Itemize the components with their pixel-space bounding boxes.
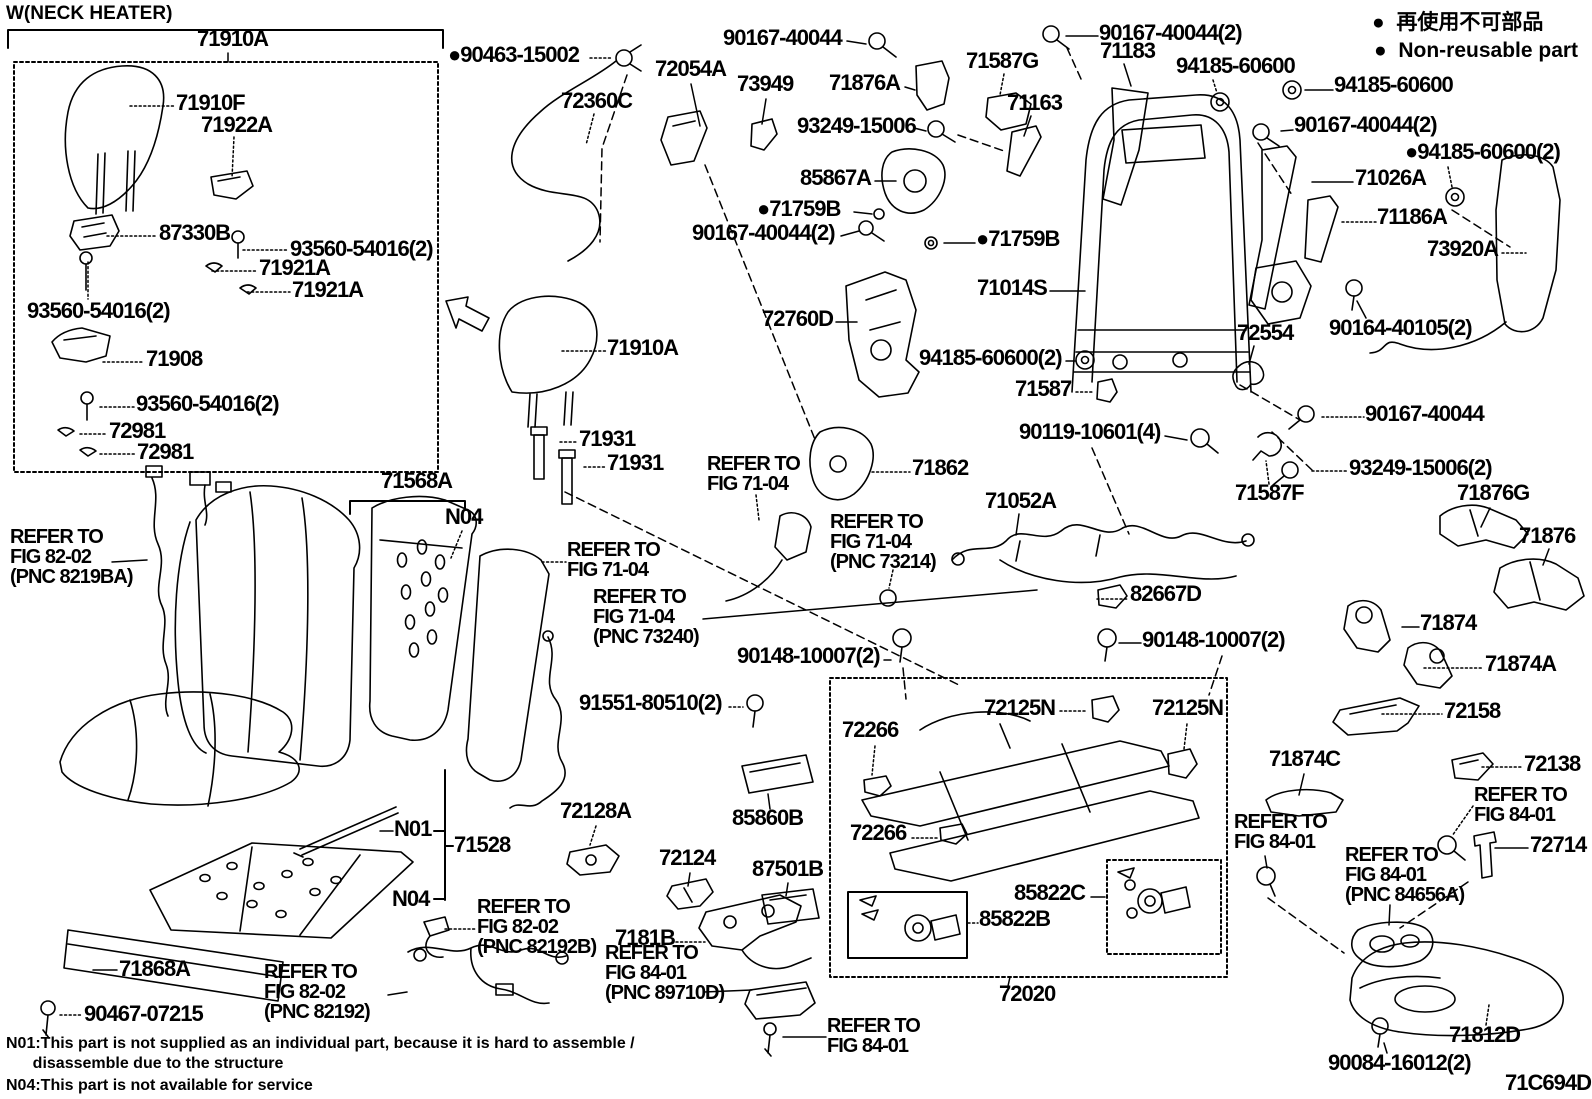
part-90463-15002: ●90463-15002 [448, 44, 579, 66]
part-71862: 71862 [912, 457, 968, 479]
cushion-pad [150, 843, 413, 938]
part-82667D: 82667D [1130, 583, 1201, 605]
seatback-frame [1072, 95, 1251, 392]
note-n01-flag: N01 [394, 818, 431, 840]
part-71931: 71931 [579, 428, 635, 450]
part-71812D: 71812D [1449, 1024, 1520, 1046]
seat-track-rail [890, 791, 1199, 881]
part-71868A: 71868A [119, 958, 190, 980]
part-71163: 71163 [1007, 92, 1062, 114]
part-85822C: 85822C [1014, 882, 1085, 904]
figure-code: 71C694D [1505, 1072, 1591, 1094]
ref-fig-82-02-pnc-82192B: REFER TO FIG 82-02 (PNC 82192B) [477, 897, 596, 957]
legend-non-reusable-en: ● Non-reusable part [1374, 40, 1578, 61]
ref-fig-71-04: REFER TO FIG 71-04 [567, 540, 660, 580]
part-90167-40044: 90167-40044(2) [1099, 22, 1242, 44]
part-71874C: 71874C [1269, 748, 1340, 770]
part-94185-60600: 94185-60600 [1176, 55, 1295, 77]
heater-switch [70, 215, 119, 250]
part-71759B: ●71759B [757, 198, 840, 220]
part-71587G: 71587G [966, 50, 1038, 72]
part-90467-07215: 90467-07215 [84, 1003, 203, 1025]
seatback-pad [370, 497, 477, 741]
part-72125N: 72125N [984, 697, 1055, 719]
part-71921A: 71921A [292, 279, 363, 301]
part-90167-40044: 90167-40044 [1365, 403, 1484, 425]
part-71014S: 71014S [977, 277, 1047, 299]
ref-fig-84-01-pnc-84656A: REFER TO FIG 84-01 (PNC 84656A) [1345, 845, 1464, 905]
part-71910A: 71910A [197, 28, 268, 50]
part-93560-54016: 93560-54016(2) [27, 300, 170, 322]
part-90164-40105: 90164-40105(2) [1329, 317, 1472, 339]
cover-shape [810, 428, 873, 500]
ref-fig-71-04-pnc-73214: REFER TO FIG 71-04 (PNC 73214) [830, 512, 936, 572]
part-72124: 72124 [659, 847, 715, 869]
part-87330B: 87330B [159, 222, 230, 244]
shield-shape [1496, 155, 1560, 332]
ref-fig-84-01: REFER TO FIG 84-01 [827, 1016, 920, 1056]
part-72981: 72981 [137, 441, 193, 463]
part-85860B: 85860B [732, 807, 803, 829]
wire-harness [952, 525, 1246, 583]
ref-fig-71-04: REFER TO FIG 71-04 [707, 454, 800, 494]
part-85867A: 85867A [800, 167, 871, 189]
part-71876: 71876 [1519, 525, 1575, 547]
ref-fig-71-04-pnc-73240: REFER TO FIG 71-04 (PNC 73240) [593, 587, 699, 647]
diagram-line-art [0, 0, 1592, 1099]
part-90119-10601: 90119-10601(4) [1019, 421, 1160, 443]
part-71876G: 71876G [1457, 482, 1529, 504]
part-90167-40044: 90167-40044(2) [692, 222, 835, 244]
part-72266: 72266 [850, 822, 906, 844]
part-71568A: 71568A [381, 470, 452, 492]
part-94185-60600: ●94185-60600(2) [1405, 141, 1560, 163]
part-72138: 72138 [1524, 753, 1580, 775]
legend-non-reusable-jp: ● 再使用不可部品 [1372, 12, 1543, 33]
part-72128A: 72128A [560, 800, 631, 822]
note-n04-text: N04:This part is not available for servi… [6, 1078, 313, 1094]
note-n01-text: disassemble due to the structure [6, 1056, 283, 1072]
part-72125N: 72125N [1152, 697, 1223, 719]
part-73949: 73949 [737, 73, 793, 95]
part-87501B: 87501B [752, 858, 823, 880]
part-71874: 71874 [1420, 612, 1476, 634]
part-72266: 72266 [842, 719, 898, 741]
ref-fig-82-02-pnc-8219BA: REFER TO FIG 82-02 (PNC 8219BA) [10, 527, 132, 587]
arrow-icon [446, 297, 489, 331]
note-n04-flag: N04 [445, 506, 482, 528]
part-90148-10007: 90148-10007(2) [737, 645, 880, 667]
headrest-shape [65, 66, 163, 209]
ref-fig-84-01: REFER TO FIG 84-01 [1474, 785, 1567, 825]
seat-track-rail [862, 741, 1169, 826]
part-93249-15006: 93249-15006 [797, 115, 916, 137]
headrest-support [52, 328, 110, 362]
cushion-cover [60, 692, 299, 805]
part-71759B: ●71759B [976, 228, 1059, 250]
part-71876A: 71876A [829, 72, 900, 94]
part-71931: 71931 [607, 452, 663, 474]
part-71587F: 71587F [1235, 482, 1304, 504]
part-94185-60600: 94185-60600(2) [919, 347, 1062, 369]
part-90148-10007: 90148-10007(2) [1142, 629, 1285, 651]
part-71908: 71908 [146, 348, 202, 370]
part-72158: 72158 [1444, 700, 1500, 722]
part-72760D: 72760D [762, 308, 833, 330]
headrest-shape [499, 296, 596, 393]
seatback-cover [196, 486, 360, 766]
part-71026A: 71026A [1355, 167, 1426, 189]
part-71052A: 71052A [985, 490, 1056, 512]
part-93249-15006: 93249-15006(2) [1349, 457, 1492, 479]
part-71186A: 71186A [1377, 206, 1447, 228]
part-71922A: 71922A [201, 114, 272, 136]
note-n01-text: N01:This part is not supplied as an indi… [6, 1036, 635, 1052]
part-90084-16012: 90084-16012(2) [1328, 1052, 1471, 1074]
part-90167-40044: 90167-40044(2) [1294, 114, 1437, 136]
part-71910F: 71910F [176, 92, 245, 114]
title-neck-heater: W(NECK HEATER) [6, 4, 172, 23]
part-72360C: 72360C [561, 90, 632, 112]
part-72054A: 72054A [655, 58, 726, 80]
part-90167-40044: 90167-40044 [723, 27, 842, 49]
parts-diagram-canvas: W(NECK HEATER)71910A71910F71922A87330B93… [0, 0, 1592, 1099]
wire-harness [152, 478, 168, 716]
part-94185-60600: 94185-60600 [1334, 74, 1453, 96]
part-71910A: 71910A [607, 337, 678, 359]
part-71874A: 71874A [1485, 653, 1556, 675]
part-93560-54016: 93560-54016(2) [136, 393, 279, 415]
part-71528: 71528 [454, 834, 510, 856]
wire-harness [510, 637, 565, 808]
part-72554: 72554 [1237, 322, 1293, 344]
part-71587: 71587 [1015, 378, 1071, 400]
ref-fig-84-01: REFER TO FIG 84-01 [1234, 812, 1327, 852]
part-71921A: 71921A [259, 257, 330, 279]
part-72020: 72020 [999, 983, 1055, 1005]
ref-fig-82-02-pnc-82192: REFER TO FIG 82-02 (PNC 82192) [264, 962, 370, 1022]
part-85822B: 85822B [979, 908, 1050, 930]
part-91551-80510: 91551-80510(2) [579, 692, 722, 714]
note-n04-flag: N04 [392, 888, 429, 910]
ref-fig-84-01-pnc-89710D: REFER TO FIG 84-01 (PNC 89710D) [605, 943, 724, 1003]
part-73920A: 73920A [1427, 238, 1498, 260]
part-72714: 72714 [1530, 834, 1586, 856]
